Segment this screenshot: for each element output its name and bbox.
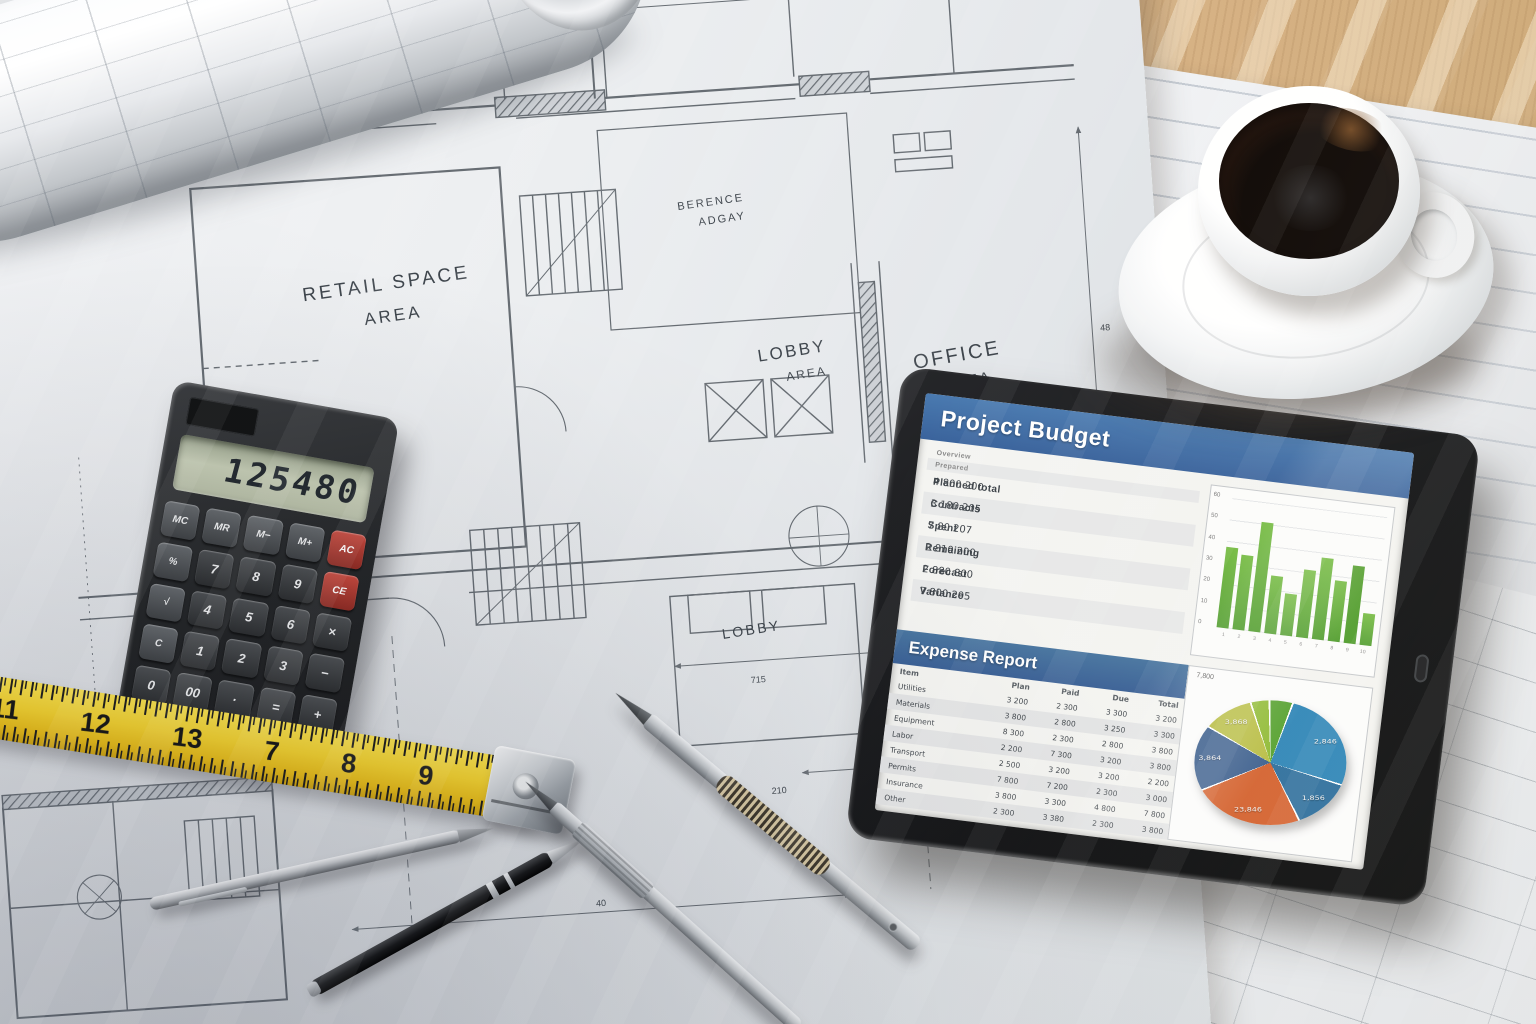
tape-clip-hole [510,771,540,801]
tape-number: 7 [263,735,282,768]
calc-key-%: % [153,541,194,581]
calc-key-AC: AC [326,530,367,570]
tablet: Project Budget OverviewPreparedPlanned t… [845,366,1480,907]
desk-scene: RETAIL SPACE AREA BERENCE ADGAY LOBBY AR… [0,0,1536,1024]
calc-key-M+: M+ [285,522,326,562]
calc-key-8: 8 [236,556,277,596]
tape-number: 11 [0,692,21,726]
tablet-screen: Project Budget OverviewPreparedPlanned t… [875,393,1415,870]
coffee-crema [1309,101,1392,159]
calc-key-9: 9 [277,563,318,603]
coffee [1219,103,1399,259]
coffee-cup [1198,86,1420,296]
calc-key-CE: CE [319,571,360,611]
calc-key-MR: MR [201,508,242,548]
calc-key-6: 6 [270,605,311,645]
calc-key-1: 1 [180,631,221,671]
tape-number: 13 [171,721,205,755]
divider-tool-hole [887,920,900,933]
tape-number: 8 [340,747,359,780]
calc-key-MC: MC [160,500,201,540]
calc-key-M−: M− [243,515,284,555]
tablet-camera-dot [1413,654,1429,683]
screen-glare [875,393,1415,870]
calc-key-2: 2 [221,638,262,678]
calculator-solar-panel [185,397,259,437]
calculator-display-value: 125480 [182,444,365,512]
calc-key-C: C [138,624,179,664]
coffee-reflection [1269,165,1352,231]
calculator-keypad: MCMRM−M+AC%789CE√456×C123−000·=+ [131,500,367,734]
pen-black-band [486,881,500,898]
calc-key-5: 5 [229,597,270,637]
calc-key-3: 3 [263,646,304,686]
tape-number: 12 [79,706,113,740]
tape-number: 9 [417,759,436,792]
calc-key-7: 7 [194,549,235,589]
calc-key-√: √ [145,583,186,623]
pen-black-band [503,872,515,888]
calc-key-×: × [312,612,353,652]
calc-key-4: 4 [187,590,228,630]
calc-key-−: − [304,653,345,693]
